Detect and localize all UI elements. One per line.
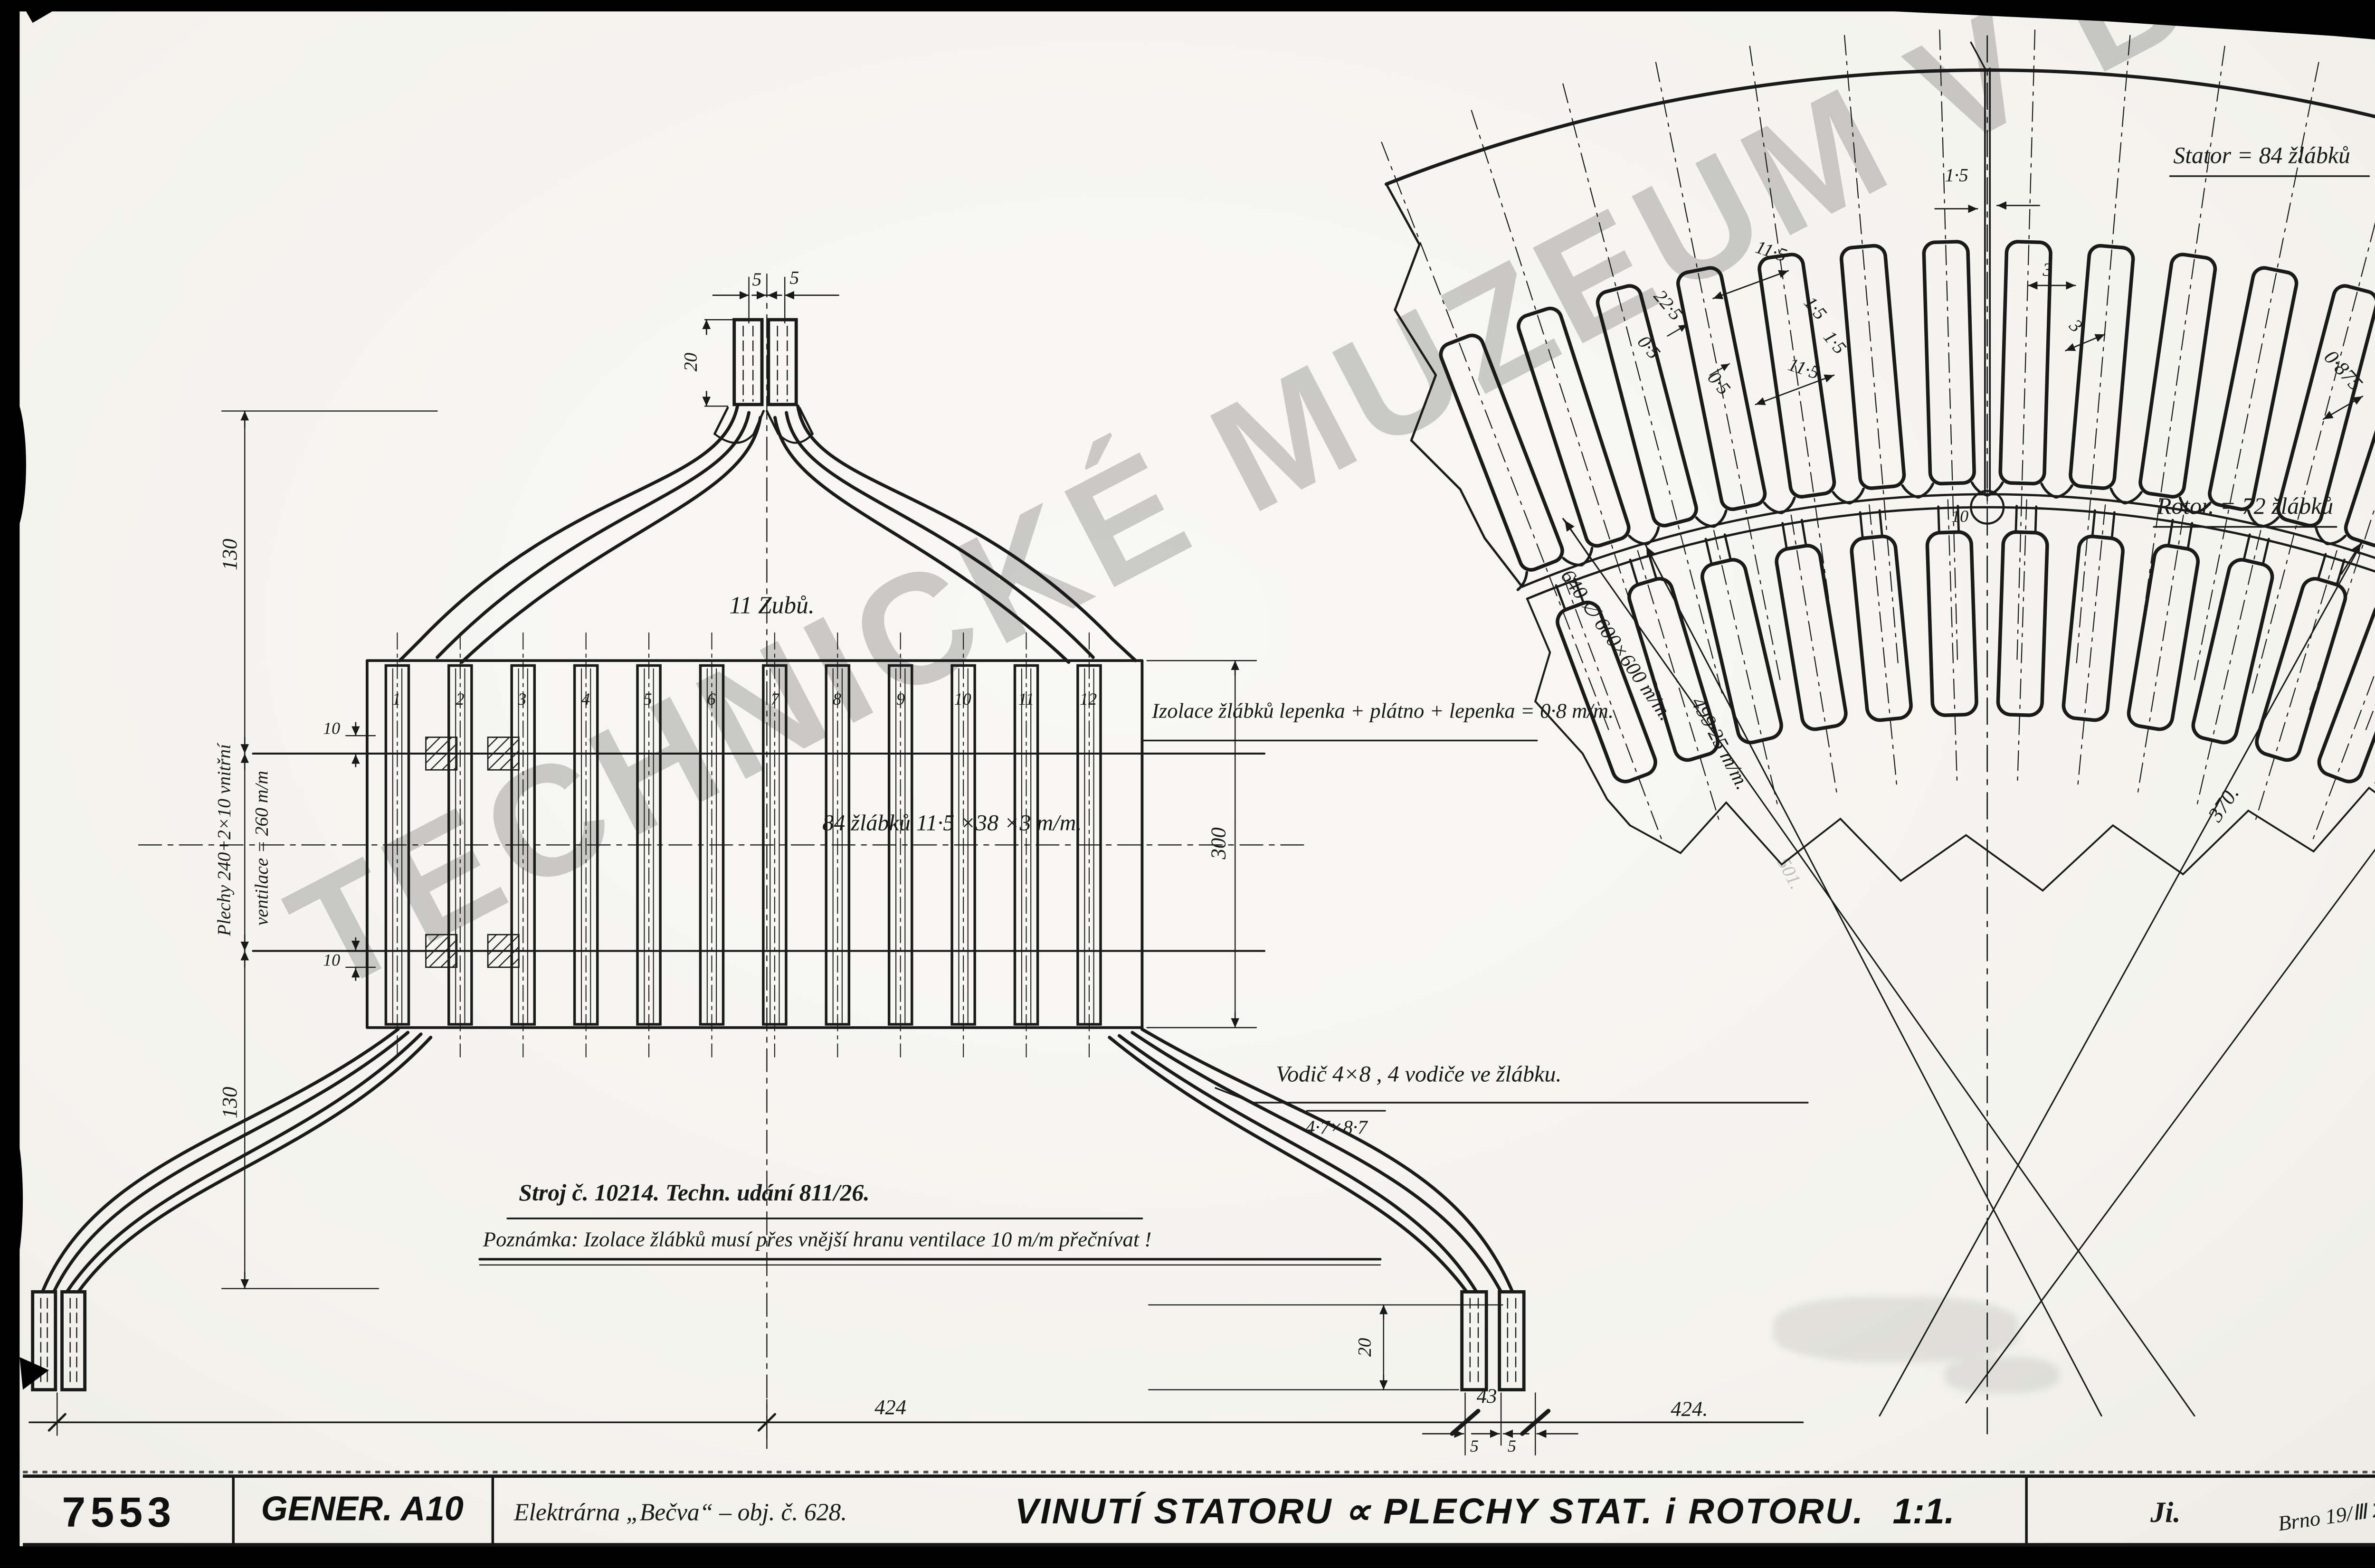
conductor-note: Vodič 4×8 , 4 vodiče ve žlábku. <box>1276 1064 1561 1090</box>
slot-number: 5 <box>636 691 659 709</box>
dim-vent-hole: 10 <box>1951 509 1968 527</box>
dim-top-gap-right: 5 <box>789 269 799 289</box>
drawing-stage: TECHNICKÉ MUZEUM V BRNĚ <box>0 0 2375 1568</box>
remark-note: Poznámka: Izolace žlábků musí přes vnějš… <box>483 1227 1152 1253</box>
slot-number: 11 <box>1015 691 1038 709</box>
dim-vent-lower: 10 <box>323 953 340 971</box>
slot-number: 6 <box>700 691 723 709</box>
dim-overhang-lower: 130 <box>217 1087 243 1119</box>
slot-number: 4 <box>574 691 597 709</box>
dim-core-height: 300 <box>1206 827 1232 859</box>
dim-bottom-gap-right: 5 <box>1508 1439 1516 1457</box>
dim-span-left: 424 <box>874 1395 906 1421</box>
slot-number: 3 <box>511 691 533 709</box>
machine-designation: GENER. A10 <box>261 1491 464 1530</box>
dim-top-lead-height: 20 <box>682 353 702 372</box>
stack-note-line1: Plechy 240+2×10 vnitřní <box>215 744 235 936</box>
draughtsman-initials: Ji. <box>2150 1496 2181 1530</box>
dim-vent-upper: 10 <box>323 721 340 739</box>
dim-bottom-gap-left: 5 <box>1470 1439 1479 1457</box>
slot-number: 8 <box>826 691 848 709</box>
left-view-group <box>29 274 1808 1455</box>
slot-number: 12 <box>1077 691 1100 709</box>
right-view-group <box>1349 29 2375 1438</box>
dim-rotor-neck-a: 3 <box>2042 261 2052 281</box>
slot-number: 1 <box>385 691 408 709</box>
rotor-label: Rotor. = 72 žlábků <box>2157 494 2333 522</box>
scanned-drawing-page: TECHNICKÉ MUZEUM V BRNĚ <box>0 0 2375 1568</box>
machine-number-note: Stroj č. 10214. Techn. udání 811/26. <box>519 1181 870 1209</box>
drawing-number: 7553 <box>62 1488 176 1538</box>
slot-number: 10 <box>951 691 974 709</box>
dim-overhang-upper: 130 <box>217 538 243 570</box>
drawing-linework <box>0 0 2375 1568</box>
teeth-count-label: 11 Zubů. <box>729 594 814 621</box>
stack-note-line2: ventilace = 260 m/m <box>253 771 272 926</box>
slot-number: 7 <box>764 691 787 709</box>
drawing-title: VINUTÍ STATORU ∝ PLECHY STAT. i ROTORU. <box>1015 1491 1865 1533</box>
drawing-scale: 1:1. <box>1892 1491 1954 1533</box>
dim-terminal-spacing: 43 <box>1477 1385 1497 1409</box>
dim-lead-height-bottom: 20 <box>1356 1338 1375 1357</box>
dim-span-right: 424. <box>1671 1396 1708 1422</box>
dim-segment-joint: 1·5 <box>1945 166 1968 186</box>
dim-top-gap-left: 5 <box>752 271 761 290</box>
slot-number: 9 <box>889 691 912 709</box>
conductor-alt-size: 4·7×8·7 <box>1305 1115 1368 1140</box>
slot-insulation-note: Izolace žlábků lepenka + plátno + lepenk… <box>1152 698 1614 724</box>
stator-label: Stator = 84 žlábků <box>2173 143 2350 171</box>
slot-number: 2 <box>449 691 472 709</box>
plant-name: Elektrárna „Bečva“ – obj. č. 628. <box>514 1501 847 1528</box>
slot-count-note: 84 žlábků 11·5 ×38 ×3 m/m. <box>822 812 1082 839</box>
